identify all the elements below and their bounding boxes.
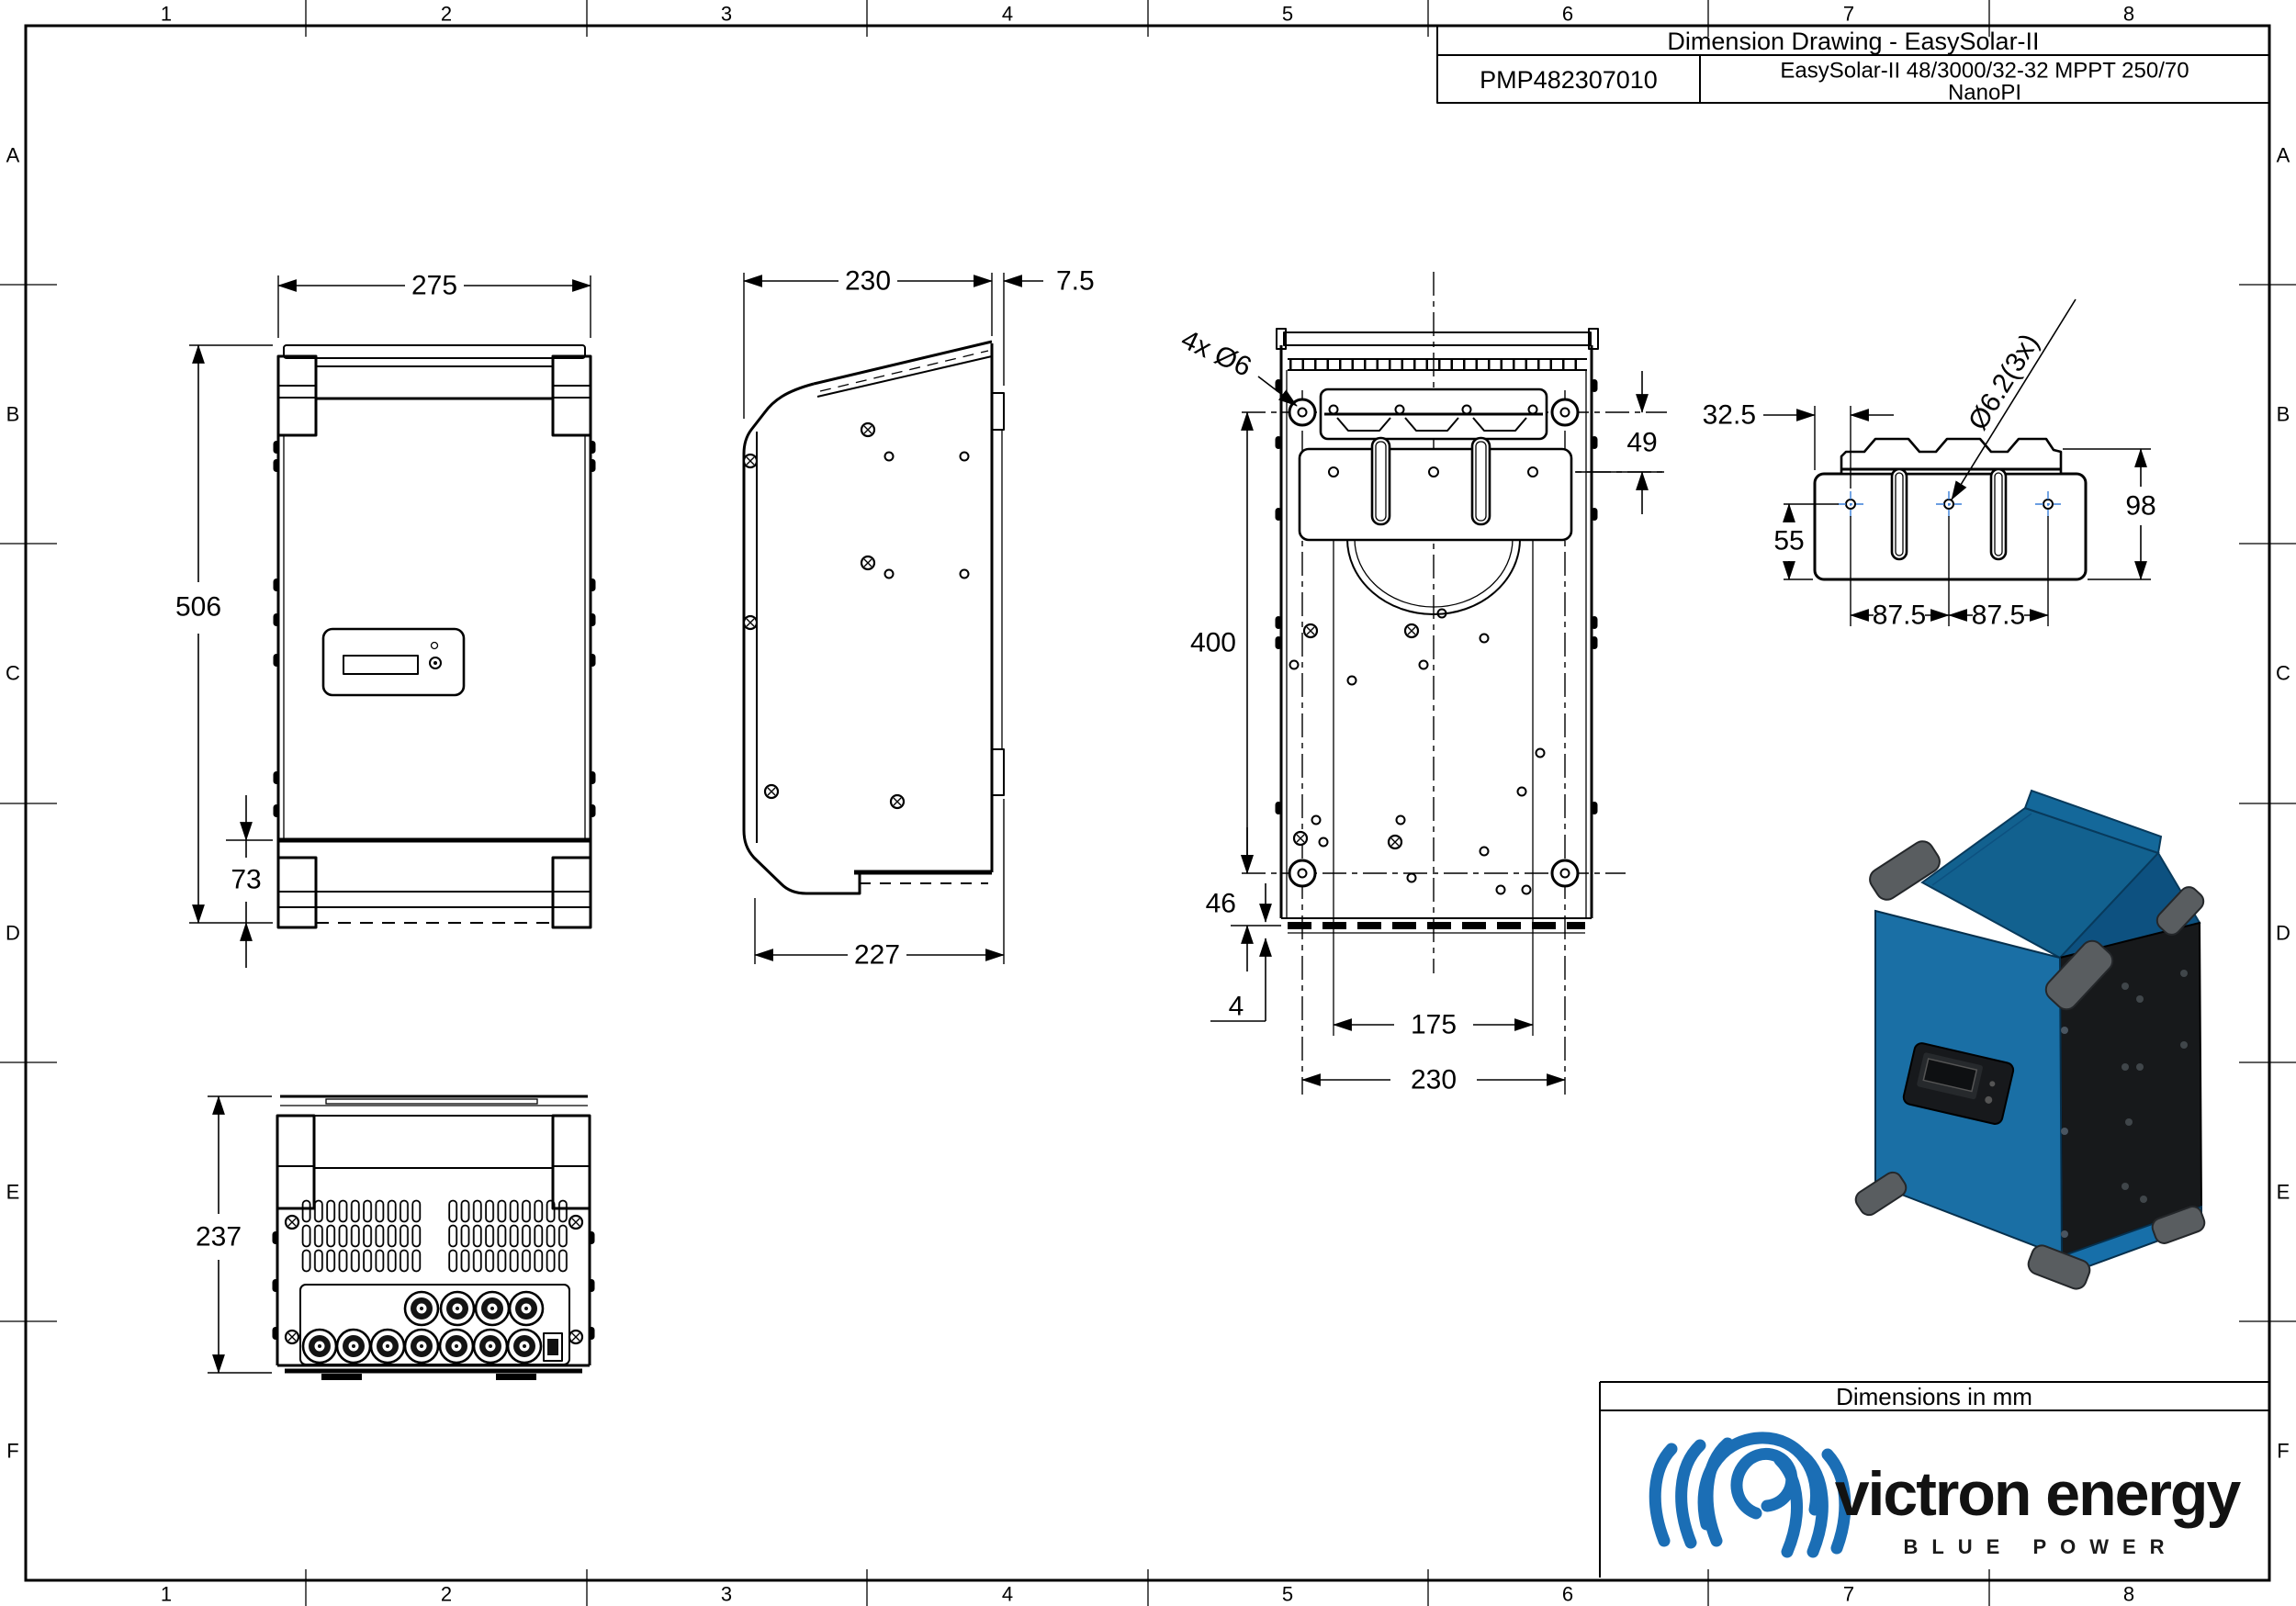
svg-text:275: 275 (411, 271, 457, 301)
dim-front-height: 506 (175, 345, 273, 923)
svg-text:175: 175 (1411, 1010, 1457, 1040)
grid-col-top-8: 8 (2123, 3, 2134, 26)
grid-col-top-1: 1 (161, 3, 172, 26)
grid-row-right-B: B (2277, 403, 2290, 426)
grid-row-right-E: E (2277, 1181, 2290, 1204)
footer-block: Dimensions in mm victron energy BLUE POW… (1600, 1382, 2269, 1578)
grid-row-left-C: C (6, 662, 20, 685)
grid-col-bot-2: 2 (441, 1583, 452, 1606)
grid-row-right-A: A (2277, 144, 2290, 167)
vent-grille-right (446, 1199, 568, 1274)
svg-text:32.5: 32.5 (1703, 400, 1756, 431)
dim-back-bottom-offset: 46 (1206, 827, 1281, 971)
grid-row-right-D: D (2276, 922, 2290, 945)
dim-back-hole-vspacing: 400 (1190, 412, 1247, 873)
grid-row-right-F: F (2277, 1440, 2289, 1463)
bottom-view: 237 (196, 1096, 595, 1380)
dimension-drawing-canvas: 1 2 3 4 5 6 7 8 1 2 3 4 5 6 7 8 A B C D … (0, 0, 2296, 1606)
part-number: PMP482307010 (1480, 66, 1658, 94)
grid-col-top-2: 2 (441, 3, 452, 26)
dim-front-width: 275 (278, 271, 591, 339)
victron-logo-mark (1655, 1438, 1845, 1552)
back-view: 4x Ø6 49 400 46 4 (1176, 272, 1667, 1095)
brand-name: victron energy (1835, 1459, 2242, 1529)
grid-col-top-6: 6 (1562, 3, 1573, 26)
grid-row-left-D: D (6, 922, 20, 945)
grid-row-left-E: E (6, 1181, 20, 1204)
svg-text:506: 506 (175, 592, 221, 623)
svg-text:400: 400 (1190, 628, 1236, 658)
vent-grille-left (300, 1199, 422, 1274)
drawing-title: Dimension Drawing - EasySolar-II (1667, 28, 2039, 55)
dim-back-hole-hspacing: 230 (1302, 1065, 1565, 1095)
side-view-screws (744, 423, 969, 808)
front-display-panel (323, 629, 464, 695)
grid-col-bot-3: 3 (721, 1583, 732, 1606)
mount-hole-bottom-left (1289, 860, 1315, 886)
svg-text:Ø6.2(3x): Ø6.2(3x) (1963, 329, 2045, 435)
dim-back-top-offset: 49 (1575, 371, 1664, 514)
grid-col-bot-6: 6 (1562, 1583, 1573, 1606)
drawing-page: 1 2 3 4 5 6 7 8 1 2 3 4 5 6 7 8 A B C D … (0, 0, 2296, 1606)
grid-col-top-7: 7 (1843, 3, 1854, 26)
front-view: 275 506 73 (175, 271, 596, 969)
brand-tagline: BLUE POWER (1903, 1535, 2178, 1558)
svg-text:87.5: 87.5 (1972, 601, 2025, 631)
side-view: 230 7.5 227 (744, 266, 1095, 971)
svg-text:237: 237 (196, 1222, 242, 1252)
svg-text:230: 230 (845, 266, 891, 297)
grid-col-bot-5: 5 (1282, 1583, 1293, 1606)
dim-back-inner-spacing: 175 (1334, 1010, 1533, 1040)
grid-col-top-4: 4 (1002, 3, 1013, 26)
units-note: Dimensions in mm (1836, 1383, 2032, 1410)
svg-text:87.5: 87.5 (1873, 601, 1926, 631)
mount-hole-top-right (1552, 399, 1578, 425)
svg-text:7.5: 7.5 (1056, 266, 1095, 297)
bracket-hole-centermarks (1838, 491, 2061, 517)
grid-col-bot-1: 1 (161, 1583, 172, 1606)
dim-bracket-edge-offset: 32.5 (1703, 400, 1894, 489)
back-view-holes (1290, 610, 1545, 894)
grid-row-left-B: B (6, 403, 20, 426)
dim-bottom-depth: 237 (196, 1096, 272, 1373)
dim-side-wall-offset: 7.5 (1004, 266, 1095, 387)
grid-row-right-C: C (2276, 662, 2290, 685)
grid-row-left-A: A (6, 144, 20, 167)
svg-text:46: 46 (1206, 889, 1236, 919)
mount-hole-bottom-right (1552, 860, 1578, 886)
grid-col-top-5: 5 (1282, 3, 1293, 26)
isometric-view (1852, 791, 2207, 1292)
grid-col-bot-7: 7 (1843, 1583, 1854, 1606)
dim-front-bottom-bracket: 73 (226, 795, 273, 968)
svg-text:4: 4 (1229, 992, 1244, 1022)
cable-glands (303, 1292, 543, 1363)
svg-text:230: 230 (1411, 1065, 1457, 1095)
grid-col-bot-4: 4 (1002, 1583, 1013, 1606)
title-block: Dimension Drawing - EasySolar-II PMP4823… (1437, 26, 2269, 106)
grid-col-bot-8: 8 (2123, 1583, 2134, 1606)
wall-bracket-view: 32.5 55 87.5 87.5 98 Ø6.2( (1703, 299, 2156, 631)
svg-text:227: 227 (854, 940, 900, 971)
grid-row-left-F: F (6, 1440, 18, 1463)
grid-col-top-3: 3 (721, 3, 732, 26)
dim-bracket-height: 98 (2063, 449, 2156, 579)
product-name-line2: NanoPI (1948, 81, 2021, 106)
dim-side-bottom-depth: 227 (755, 799, 1004, 971)
back-side-clips (1276, 379, 1598, 814)
callout-back-mount-holes: 4x Ø6 (1176, 324, 1297, 406)
svg-text:49: 49 (1626, 428, 1657, 458)
svg-text:55: 55 (1773, 526, 1804, 556)
dim-bracket-drop: 55 (1773, 504, 1839, 579)
dim-bracket-pitch: 87.5 87.5 (1851, 516, 2048, 631)
product-name-line1: EasySolar-II 48/3000/32-32 MPPT 250/70 (1780, 59, 2189, 84)
svg-text:4x Ø6: 4x Ø6 (1176, 324, 1255, 383)
svg-text:73: 73 (231, 865, 261, 895)
svg-text:98: 98 (2125, 491, 2155, 522)
